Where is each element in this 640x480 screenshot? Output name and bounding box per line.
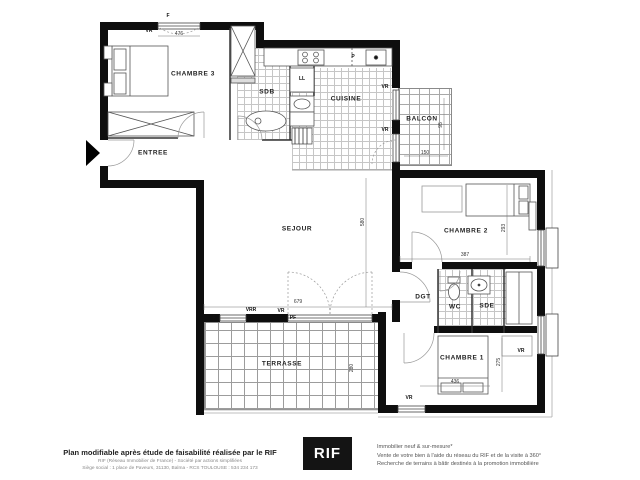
room-label-cuisine: CUISINE xyxy=(331,96,362,103)
room-label-terrasse: TERRASSE xyxy=(262,361,302,368)
window-sill-chambre2 xyxy=(546,228,558,268)
floor-plan: CHAMBRE 3 SDB CUISINE BALCON ENTREE SEJO… xyxy=(0,0,640,432)
footer-service-line2: Vente de votre bien à l'aide du réseau d… xyxy=(377,452,541,461)
kitchen-counter xyxy=(264,48,392,66)
room-label-wc: WC xyxy=(449,304,461,311)
tag-f-sejour: F xyxy=(212,315,215,321)
footer: Plan modifiable après étude de faisabili… xyxy=(0,432,640,480)
rif-logo: RIF xyxy=(303,437,352,470)
dim-chambre3-width: 476 xyxy=(175,31,183,37)
entry-arrow-icon xyxy=(86,140,100,166)
tag-vr-chambre3: VR xyxy=(146,28,153,34)
closet-entree xyxy=(108,112,194,136)
rif-logo-text: RIF xyxy=(314,445,341,462)
door-chambre2 xyxy=(412,232,442,262)
furniture xyxy=(104,26,536,394)
tag-vr-cuisine1: VR xyxy=(382,84,389,90)
dim-balcon-height: 95 xyxy=(438,122,444,128)
tag-pf-sejour: PF xyxy=(290,315,296,321)
tag-vrr-sejour: VRR xyxy=(246,307,257,313)
footer-service-line3: Recherche de terrains à bâtir destinés à… xyxy=(377,460,541,469)
footer-services: Immobilier neuf & sur-mesure* Vente de v… xyxy=(377,443,541,469)
closet-chambre3 xyxy=(231,26,255,83)
tag-p-cuisine: P xyxy=(351,54,354,60)
wardrobe-chambre2 xyxy=(422,186,462,212)
kitchen-sink xyxy=(290,96,314,144)
bathtub-icon xyxy=(246,111,286,131)
closet-corridor xyxy=(506,272,532,324)
bed-chambre2 xyxy=(466,184,530,216)
radiator-chambre2 xyxy=(529,202,536,230)
dim-chambre1-height: 275 xyxy=(496,358,502,366)
dim-balcon-width: 150 xyxy=(421,150,429,156)
room-label-dgt: DGT xyxy=(415,294,431,301)
windows xyxy=(158,23,558,412)
dim-sejour-height: 580 xyxy=(360,218,366,226)
tag-ll: LL xyxy=(299,76,305,82)
tag-vr-chambre1-east: VR xyxy=(518,348,525,354)
dim-chambre2-height: 293 xyxy=(501,224,507,232)
dim-sejour-width: 679 xyxy=(294,299,302,305)
door-chambre1 xyxy=(404,333,434,363)
footer-main-text: Plan modifiable après étude de faisabili… xyxy=(58,448,282,457)
room-label-chambre2: CHAMBRE 2 xyxy=(444,228,488,235)
porte-fenetre-swing xyxy=(288,272,372,314)
room-label-entree: ENTREE xyxy=(138,150,168,157)
footer-service-line1: Immobilier neuf & sur-mesure* xyxy=(377,443,541,452)
bed-chambre3 xyxy=(104,46,168,96)
dim-chambre1-width: 436 xyxy=(451,379,459,385)
window-sill-chambre1 xyxy=(546,314,558,356)
tag-f-chambre3: F xyxy=(166,13,169,19)
footer-sub-line2: Siège social : 1 place de Paveurs, 31130… xyxy=(58,466,282,471)
tag-vr-chambre1-south: VR xyxy=(406,395,413,401)
door-entry xyxy=(108,140,134,166)
room-label-balcon: BALCON xyxy=(406,116,437,123)
tag-vr-sejour: VR xyxy=(278,308,285,314)
footer-sub-line1: RIF (Réseau Immobilier de France) - Soci… xyxy=(58,459,282,464)
dim-terrasse-height: 280 xyxy=(349,364,355,372)
balcon-door-swing xyxy=(372,140,396,164)
room-label-sejour: SEJOUR xyxy=(282,226,312,233)
bed-chambre1 xyxy=(438,336,488,394)
room-label-sdb: SDB xyxy=(259,89,275,96)
dim-chambre2-width: 387 xyxy=(461,252,469,258)
room-label-sde: SDE xyxy=(479,303,494,310)
tag-vr-cuisine2: VR xyxy=(382,127,389,133)
room-label-chambre1: CHAMBRE 1 xyxy=(440,355,484,362)
room-label-chambre3: CHAMBRE 3 xyxy=(171,71,215,78)
floor-plan-drawing xyxy=(0,0,640,432)
sink-icon xyxy=(468,276,490,294)
